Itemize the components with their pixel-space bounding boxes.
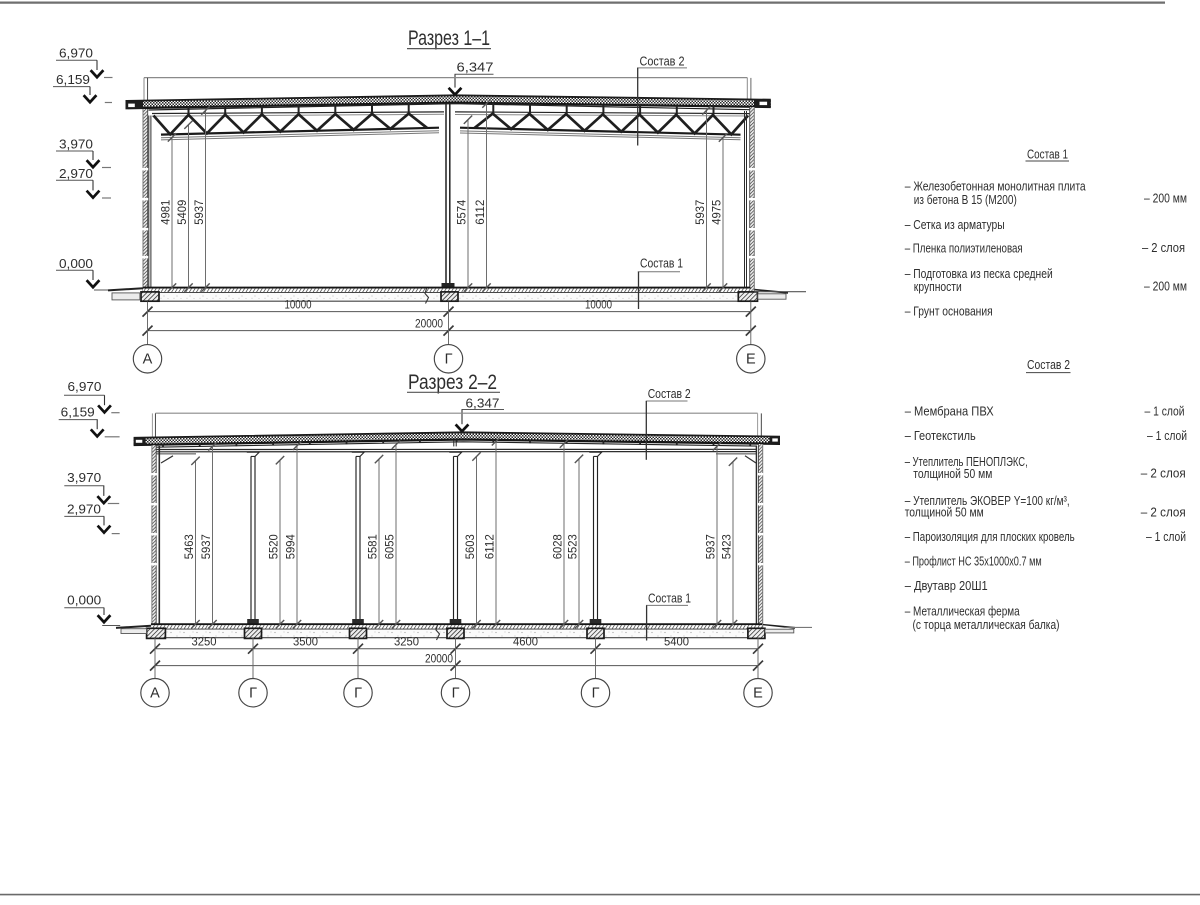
svg-text:5994: 5994 bbox=[284, 534, 298, 559]
svg-text:Г: Г bbox=[354, 686, 362, 702]
svg-text:3500: 3500 bbox=[293, 635, 318, 649]
svg-text:– 2 слоя: – 2 слоя bbox=[1142, 240, 1185, 255]
svg-text:20000: 20000 bbox=[415, 316, 443, 330]
svg-text:– 200 мм: – 200 мм bbox=[1144, 190, 1187, 205]
svg-text:3,970: 3,970 bbox=[59, 137, 93, 152]
svg-text:Состав 1: Состав 1 bbox=[640, 256, 683, 271]
svg-text:4600: 4600 bbox=[513, 635, 538, 649]
svg-text:– 1 слой: – 1 слой bbox=[1147, 428, 1187, 443]
svg-text:5463: 5463 bbox=[182, 534, 196, 559]
svg-text:Г: Г bbox=[249, 686, 257, 702]
svg-text:6055: 6055 bbox=[383, 534, 397, 559]
svg-text:– 200 мм: – 200 мм bbox=[1144, 278, 1187, 293]
svg-text:4975: 4975 bbox=[710, 200, 724, 225]
svg-text:– 1 слой: – 1 слой bbox=[1145, 404, 1185, 419]
svg-text:(с торца металлическая балка): (с торца металлическая балка) bbox=[913, 617, 1060, 632]
svg-text:6,970: 6,970 bbox=[68, 379, 102, 394]
svg-text:Состав 1: Состав 1 bbox=[648, 590, 691, 605]
svg-text:– Профлист НС 35х1000х0.7 мм: – Профлист НС 35х1000х0.7 мм bbox=[905, 553, 1042, 568]
svg-text:Е: Е bbox=[746, 352, 756, 368]
svg-text:Состав 1: Состав 1 bbox=[1027, 146, 1068, 161]
svg-text:– Сетка из арматуры: – Сетка из арматуры bbox=[905, 217, 1005, 232]
svg-text:Разрез 1–1: Разрез 1–1 bbox=[408, 27, 490, 50]
svg-text:Г: Г bbox=[445, 352, 453, 368]
svg-text:– Грунт основания: – Грунт основания bbox=[905, 304, 993, 319]
svg-text:– Пленка полиэтиленовая: – Пленка полиэтиленовая bbox=[905, 240, 1023, 255]
svg-text:5409: 5409 bbox=[175, 200, 189, 225]
svg-text:из бетона В 15 (М200): из бетона В 15 (М200) bbox=[914, 192, 1017, 207]
svg-text:Состав 2: Состав 2 bbox=[648, 386, 691, 401]
svg-text:4981: 4981 bbox=[159, 200, 173, 225]
svg-text:Состав 2: Состав 2 bbox=[640, 53, 685, 68]
svg-text:3250: 3250 bbox=[394, 635, 419, 649]
svg-text:5400: 5400 bbox=[664, 635, 689, 649]
svg-text:20000: 20000 bbox=[425, 652, 453, 666]
svg-text:10000: 10000 bbox=[585, 297, 612, 311]
svg-text:6,347: 6,347 bbox=[457, 59, 494, 74]
svg-text:5423: 5423 bbox=[720, 534, 734, 559]
svg-text:– Двутавр 20Ш1: – Двутавр 20Ш1 bbox=[905, 578, 988, 593]
svg-text:5523: 5523 bbox=[566, 534, 580, 559]
svg-text:– 2 слоя: – 2 слоя bbox=[1141, 466, 1186, 481]
svg-text:А: А bbox=[150, 686, 160, 702]
svg-text:Разрез 2–2: Разрез 2–2 bbox=[408, 371, 497, 394]
svg-text:5520: 5520 bbox=[267, 534, 281, 559]
svg-text:А: А bbox=[143, 352, 153, 368]
svg-text:6,347: 6,347 bbox=[466, 395, 500, 410]
svg-text:10000: 10000 bbox=[285, 297, 312, 311]
svg-text:5574: 5574 bbox=[455, 200, 469, 225]
svg-text:– 2 слоя: – 2 слоя bbox=[1141, 504, 1186, 519]
svg-text:5603: 5603 bbox=[463, 534, 477, 559]
svg-text:Г: Г bbox=[592, 686, 600, 702]
svg-text:5937: 5937 bbox=[192, 200, 206, 225]
svg-text:6,970: 6,970 bbox=[59, 46, 93, 61]
svg-text:5937: 5937 bbox=[199, 534, 213, 559]
svg-text:2,970: 2,970 bbox=[67, 501, 101, 516]
svg-text:0,000: 0,000 bbox=[67, 593, 101, 608]
svg-text:крупности: крупности bbox=[914, 279, 962, 294]
svg-text:– Геотекстиль: – Геотекстиль bbox=[905, 428, 976, 443]
svg-text:– Мембрана ПВХ: – Мембрана ПВХ bbox=[905, 404, 994, 419]
svg-text:5581: 5581 bbox=[366, 534, 380, 559]
svg-text:6028: 6028 bbox=[551, 534, 565, 559]
svg-text:0,000: 0,000 bbox=[59, 256, 93, 271]
svg-text:Е: Е bbox=[753, 686, 763, 702]
svg-text:2,970: 2,970 bbox=[59, 166, 93, 181]
svg-text:3,970: 3,970 bbox=[67, 470, 101, 485]
svg-text:6112: 6112 bbox=[473, 199, 487, 224]
svg-text:6112: 6112 bbox=[483, 534, 497, 559]
svg-text:– 1 слой: – 1 слой bbox=[1146, 529, 1186, 544]
svg-text:Состав 2: Состав 2 bbox=[1027, 357, 1070, 372]
svg-text:5937: 5937 bbox=[704, 534, 718, 559]
svg-text:5937: 5937 bbox=[693, 200, 707, 225]
svg-text:3250: 3250 bbox=[192, 635, 217, 649]
svg-text:6,159: 6,159 bbox=[56, 72, 90, 87]
svg-text:Г: Г bbox=[452, 686, 460, 702]
svg-text:– Пароизоляция для плоских кро: – Пароизоляция для плоских кровель bbox=[905, 529, 1075, 544]
svg-text:толщиной 50 мм: толщиной 50 мм bbox=[913, 466, 992, 481]
svg-text:6,159: 6,159 bbox=[61, 405, 95, 420]
svg-text:толщиной 50 мм: толщиной 50 мм bbox=[905, 505, 984, 520]
